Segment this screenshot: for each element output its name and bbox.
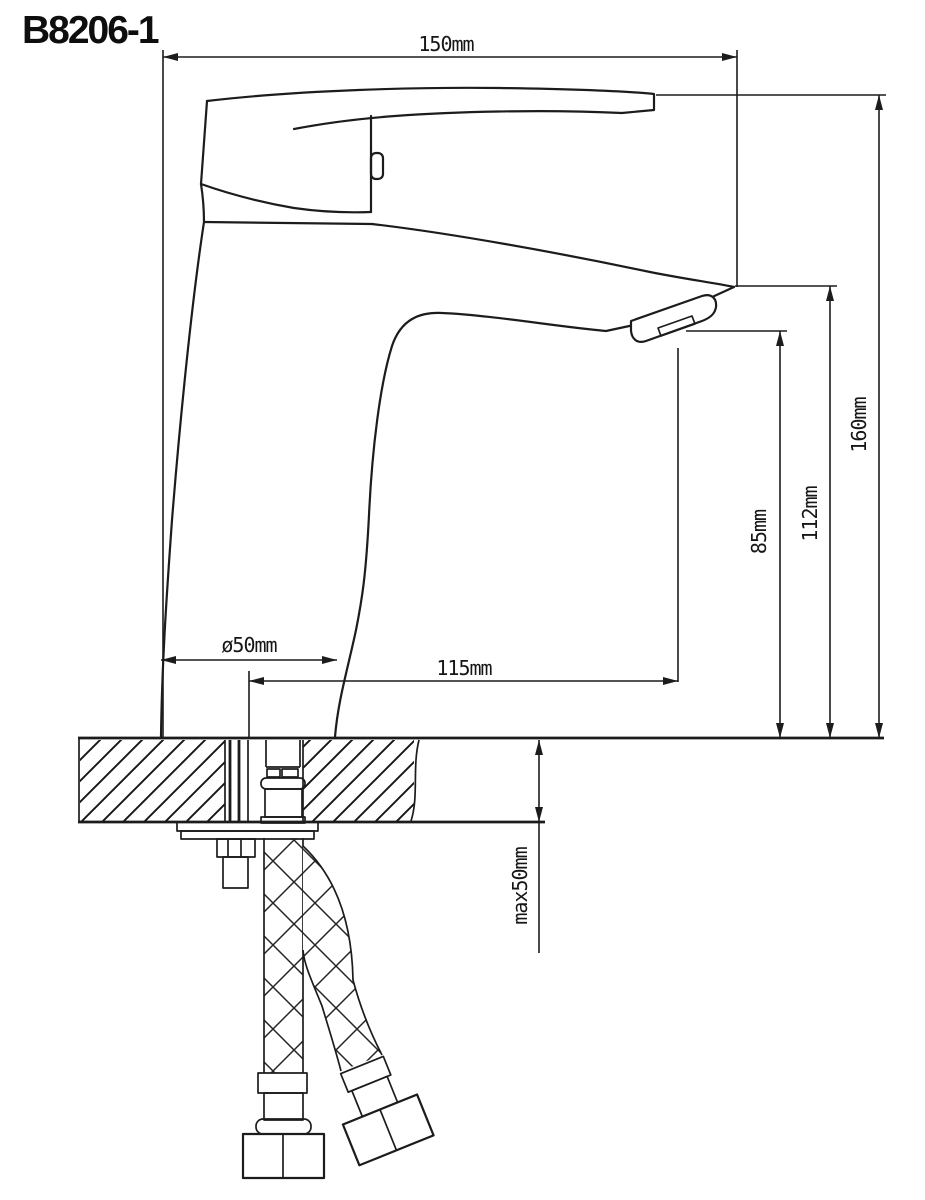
curved-supply-hose [303, 846, 382, 1071]
arrowhead-left [249, 677, 264, 685]
mounting-nut-lower [223, 857, 248, 888]
aerator-outlet [631, 295, 716, 342]
dimension-d50mm: ø50mm [161, 633, 337, 664]
arrowhead-top [776, 331, 784, 346]
handle-bottom-edge [201, 184, 371, 212]
arrowhead-top [535, 740, 543, 755]
dim-label-115mm: 115mm [436, 656, 492, 680]
drawing-title: B8206-1 [22, 9, 159, 52]
faucet-shank [261, 740, 305, 823]
mounting-nut-upper [217, 839, 255, 857]
dim-label-d50mm: ø50mm [221, 633, 277, 657]
supply-hoses [243, 838, 434, 1178]
dim-label-150mm: 150mm [418, 32, 474, 56]
straight-hose-ferrule [258, 1073, 307, 1093]
arrowhead-top [826, 286, 834, 301]
straight-hose-fitting [243, 1073, 324, 1178]
spout-top-curve [372, 224, 734, 287]
dim-label-85mm: 85mm [747, 509, 771, 554]
arrowhead-right [722, 53, 737, 61]
dim-label-160mm: 160mm [847, 396, 871, 452]
body-top-line [204, 222, 372, 224]
straight-supply-hose [264, 838, 303, 1073]
straight-hose-braid [264, 838, 303, 1073]
curved-hose-braid [303, 846, 382, 1071]
arrowhead-right [663, 677, 678, 685]
countertop-hatch-left [80, 740, 225, 821]
straight-hose-collar [264, 1093, 303, 1120]
handle-lever-outline [207, 88, 654, 129]
dim-label-max50mm: max50mm [508, 846, 532, 924]
arrowhead-right [322, 656, 337, 664]
countertop-section [78, 738, 884, 823]
arrowhead-left [163, 53, 178, 61]
dimension-115mm: 115mm [249, 348, 678, 739]
faucet-technical-drawing: B8206-1 [0, 0, 925, 1200]
arrowhead-bottom [875, 723, 883, 738]
angled-hose-nut-facet [380, 1110, 396, 1151]
arrowhead-top [875, 95, 883, 110]
arrowhead-bottom [776, 723, 784, 738]
dimension-160mm: 160mm [656, 95, 886, 738]
arrowhead-bottom [826, 723, 834, 738]
countertop-hatch-right [303, 740, 414, 821]
dim-label-112mm: 112mm [798, 485, 822, 541]
neck-left-segment [201, 184, 204, 222]
mounting-flange-lower [181, 831, 314, 839]
technical-drawing-page: B8206-1 [0, 0, 925, 1200]
handle-left-edge [201, 101, 207, 184]
handle-button [371, 153, 383, 179]
straight-hose-bulge [256, 1119, 311, 1134]
dimension-max50mm: max50mm [508, 740, 543, 953]
arrowhead-bottom [535, 807, 543, 822]
dimension-85mm: 85mm [686, 331, 787, 738]
